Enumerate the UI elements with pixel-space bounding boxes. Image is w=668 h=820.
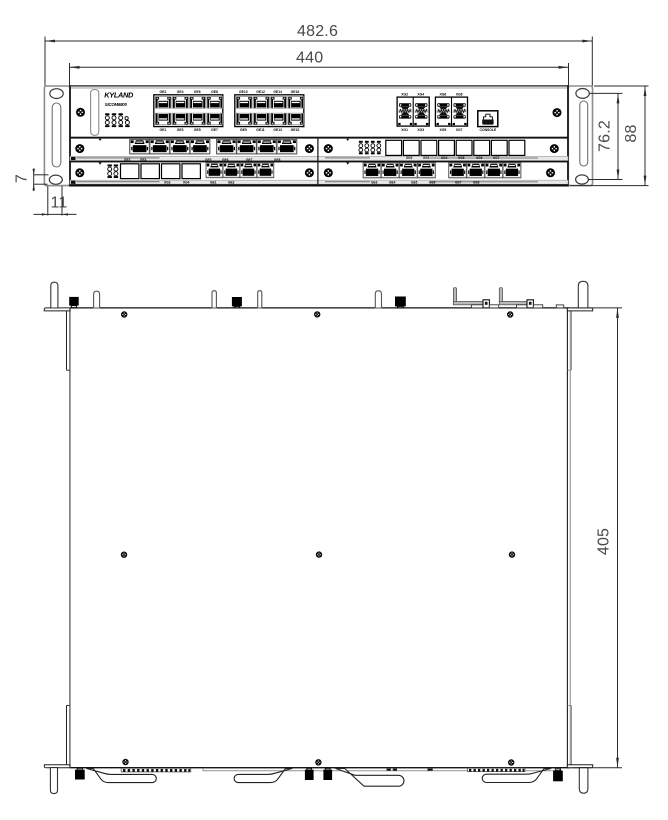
svg-text:GE1: GE1 [210,180,217,184]
svg-text:GE5: GE5 [411,180,418,184]
svg-text:GE14: GE14 [273,90,282,94]
svg-text:GE7: GE7 [246,158,253,162]
svg-text:XG6: XG6 [440,92,447,96]
svg-text:GE4: GE4 [389,180,396,184]
svg-text:XG1: XG1 [401,128,408,132]
svg-text:XG4: XG4 [441,156,448,160]
svg-text:GE8: GE8 [473,180,480,184]
svg-text:GE6: GE6 [429,180,436,184]
svg-text:XG4: XG4 [417,92,424,96]
svg-text:GE3: GE3 [371,180,378,184]
svg-text:GE9: GE9 [240,128,247,132]
svg-text:XG8: XG8 [456,92,463,96]
svg-text:GE12: GE12 [256,90,265,94]
svg-text:SICOM6800: SICOM6800 [105,102,128,107]
svg-text:GE7: GE7 [211,128,218,132]
svg-text:XG5: XG5 [458,156,465,160]
svg-text:XG5: XG5 [440,128,447,132]
svg-text:7: 7 [14,174,31,183]
svg-text:GE4: GE4 [177,90,184,94]
svg-text:XG4: XG4 [183,180,190,184]
svg-text:405: 405 [596,528,613,555]
svg-text:GE5: GE5 [205,158,212,162]
svg-text:GE6: GE6 [194,90,201,94]
svg-text:GE5: GE5 [194,128,201,132]
svg-text:GE1: GE1 [160,128,167,132]
svg-text:XG2: XG2 [401,92,408,96]
svg-text:88: 88 [623,124,640,142]
svg-text:76.2: 76.2 [597,120,614,152]
svg-text:XG7: XG7 [493,156,500,160]
svg-text:GE7: GE7 [455,180,462,184]
svg-text:GE11: GE11 [256,128,265,132]
svg-text:XG6: XG6 [476,156,483,160]
svg-text:482.6: 482.6 [297,23,338,40]
svg-text:GE3: GE3 [124,158,131,162]
svg-text:XG3: XG3 [164,180,171,184]
svg-text:GE2: GE2 [228,180,235,184]
svg-text:XG2: XG2 [406,156,413,160]
svg-text:GE2: GE2 [160,90,167,94]
svg-text:GE10: GE10 [239,90,248,94]
svg-text:GE15: GE15 [291,128,300,132]
svg-text:GE13: GE13 [273,128,282,132]
svg-text:CONSOLE: CONSOLE [480,128,498,132]
svg-text:XG3: XG3 [417,128,424,132]
svg-text:XG7: XG7 [456,128,463,132]
svg-text:GE8: GE8 [274,158,281,162]
svg-text:GE3: GE3 [177,128,184,132]
svg-text:GE6: GE6 [222,158,229,162]
svg-text:11: 11 [51,195,68,212]
svg-text:GE4: GE4 [140,158,147,162]
svg-text:GE16: GE16 [291,90,300,94]
svg-text:GE8: GE8 [211,90,218,94]
svg-text:440: 440 [296,49,323,66]
svg-text:KYLAND: KYLAND [104,91,134,100]
svg-text:XG3: XG3 [423,156,430,160]
